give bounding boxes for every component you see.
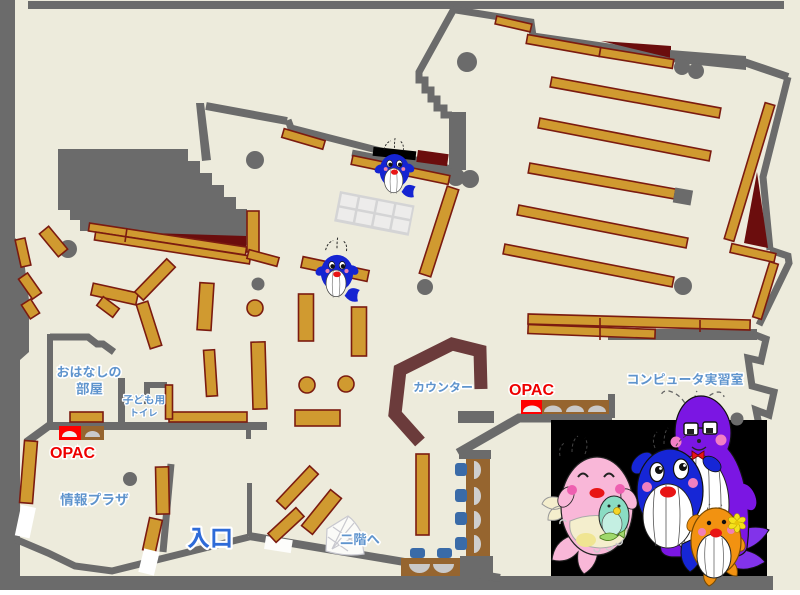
svg-text:OPAC: OPAC [50,445,95,462]
svg-text:OPAC: OPAC [509,382,554,399]
